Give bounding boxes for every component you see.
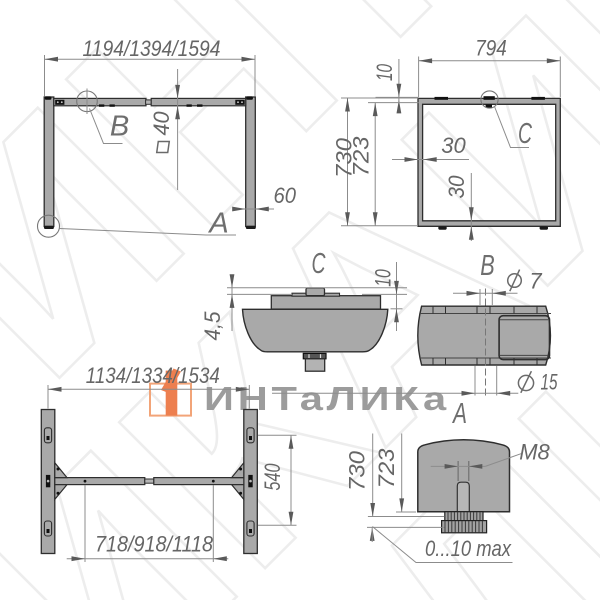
svg-text:730: 730 <box>345 450 370 491</box>
svg-text:C: C <box>312 248 327 280</box>
svg-text:794: 794 <box>475 36 507 61</box>
svg-text:C: C <box>518 118 533 150</box>
svg-text:30: 30 <box>441 133 466 158</box>
svg-text:540: 540 <box>260 463 285 491</box>
svg-text:723: 723 <box>348 136 373 177</box>
svg-text:7: 7 <box>529 269 542 294</box>
svg-text:40: 40 <box>149 111 174 136</box>
svg-text:B: B <box>110 111 129 143</box>
svg-text:10: 10 <box>372 63 397 81</box>
svg-text:1194/1394/1594: 1194/1394/1594 <box>83 36 221 61</box>
svg-text:A: A <box>207 208 228 240</box>
svg-text:723: 723 <box>374 448 399 489</box>
svg-text:10: 10 <box>371 269 396 287</box>
svg-text:30: 30 <box>444 175 469 199</box>
svg-text:ИНТаЛИКа: ИНТаЛИКа <box>204 380 450 417</box>
svg-text:M8: M8 <box>519 440 550 465</box>
svg-text:1134/1334/1534: 1134/1334/1534 <box>86 363 220 388</box>
svg-text:B: B <box>480 250 495 282</box>
svg-text:60: 60 <box>274 183 297 208</box>
svg-text:A: A <box>452 398 467 430</box>
svg-text:718/918/1118: 718/918/1118 <box>95 532 214 557</box>
svg-text:4,5: 4,5 <box>200 311 225 341</box>
svg-text:0...10 max: 0...10 max <box>425 536 512 561</box>
svg-text:15: 15 <box>541 370 559 395</box>
